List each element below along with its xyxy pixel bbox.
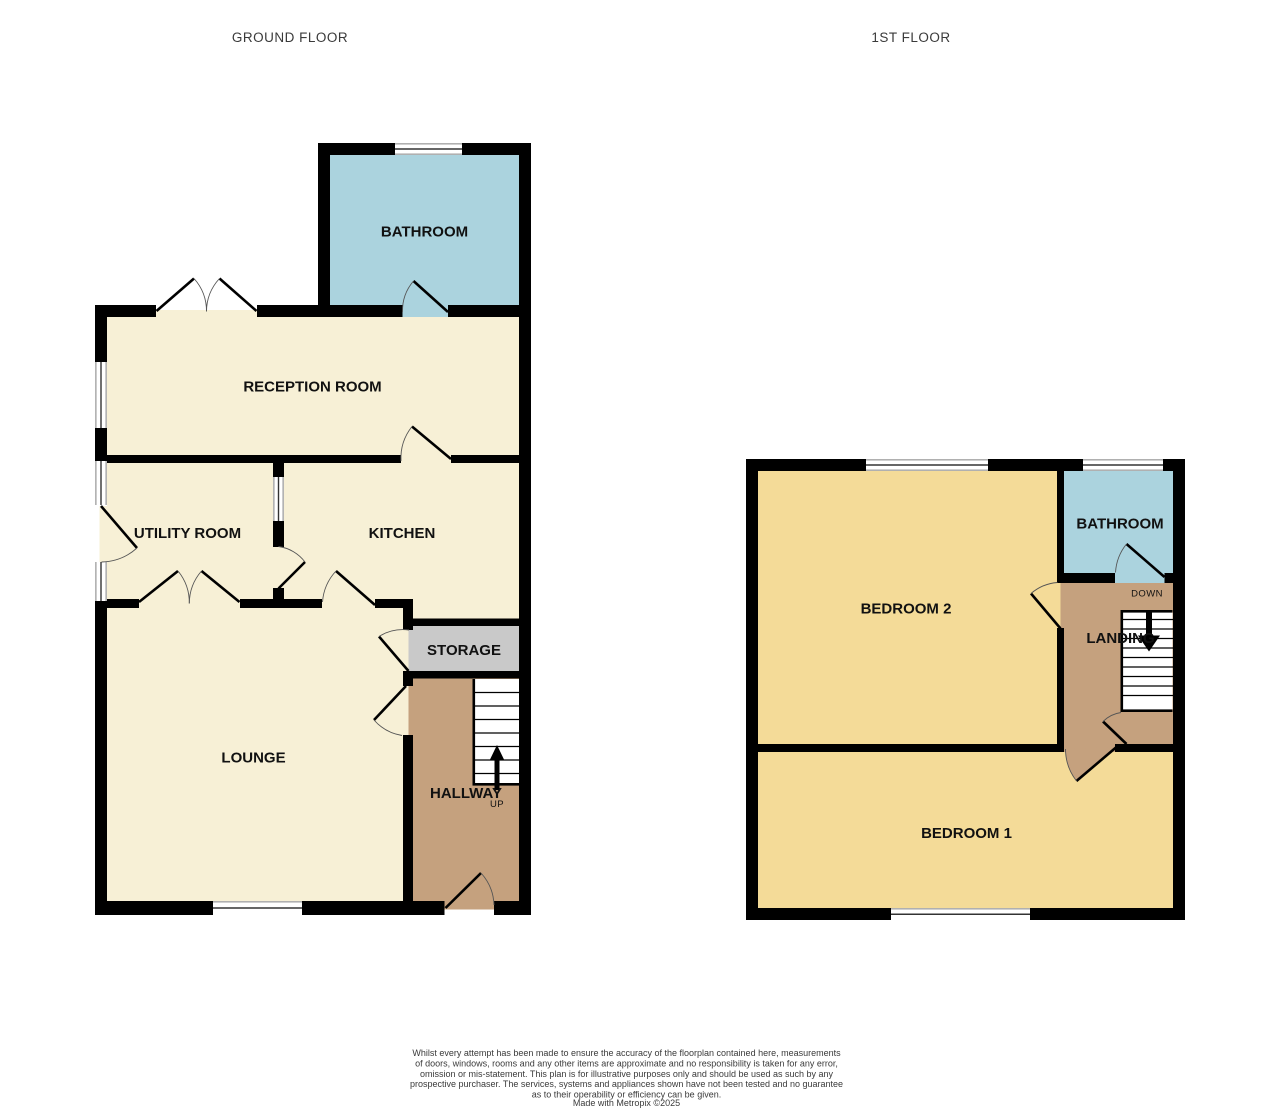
svg-text:of doors, windows, rooms and a: of doors, windows, rooms and any other i…: [415, 1058, 838, 1068]
svg-text:UP: UP: [490, 799, 504, 810]
svg-text:STORAGE: STORAGE: [427, 642, 501, 659]
svg-text:GROUND FLOOR: GROUND FLOOR: [232, 30, 348, 45]
svg-text:prospective purchaser. The ser: prospective purchaser. The services, sys…: [410, 1079, 843, 1089]
svg-text:RECEPTION ROOM: RECEPTION ROOM: [243, 379, 381, 396]
svg-text:BEDROOM 1: BEDROOM 1: [921, 825, 1012, 842]
svg-text:Made with Metropix ©2025: Made with Metropix ©2025: [573, 1098, 680, 1108]
svg-text:Whilst every attempt has been: Whilst every attempt has been made to en…: [412, 1048, 841, 1058]
svg-text:omission or mis-statement. Thi: omission or mis-statement. This plan is …: [420, 1069, 834, 1079]
svg-text:LOUNGE: LOUNGE: [221, 750, 285, 767]
svg-text:BATHROOM: BATHROOM: [381, 224, 468, 241]
svg-text:1ST FLOOR: 1ST FLOOR: [871, 30, 950, 45]
svg-text:BATHROOM: BATHROOM: [1076, 516, 1163, 533]
svg-text:UTILITY ROOM: UTILITY ROOM: [134, 525, 241, 542]
svg-text:KITCHEN: KITCHEN: [369, 525, 436, 542]
svg-text:LANDING: LANDING: [1086, 630, 1154, 647]
svg-text:BEDROOM 2: BEDROOM 2: [861, 601, 952, 618]
svg-text:DOWN: DOWN: [1131, 589, 1163, 600]
